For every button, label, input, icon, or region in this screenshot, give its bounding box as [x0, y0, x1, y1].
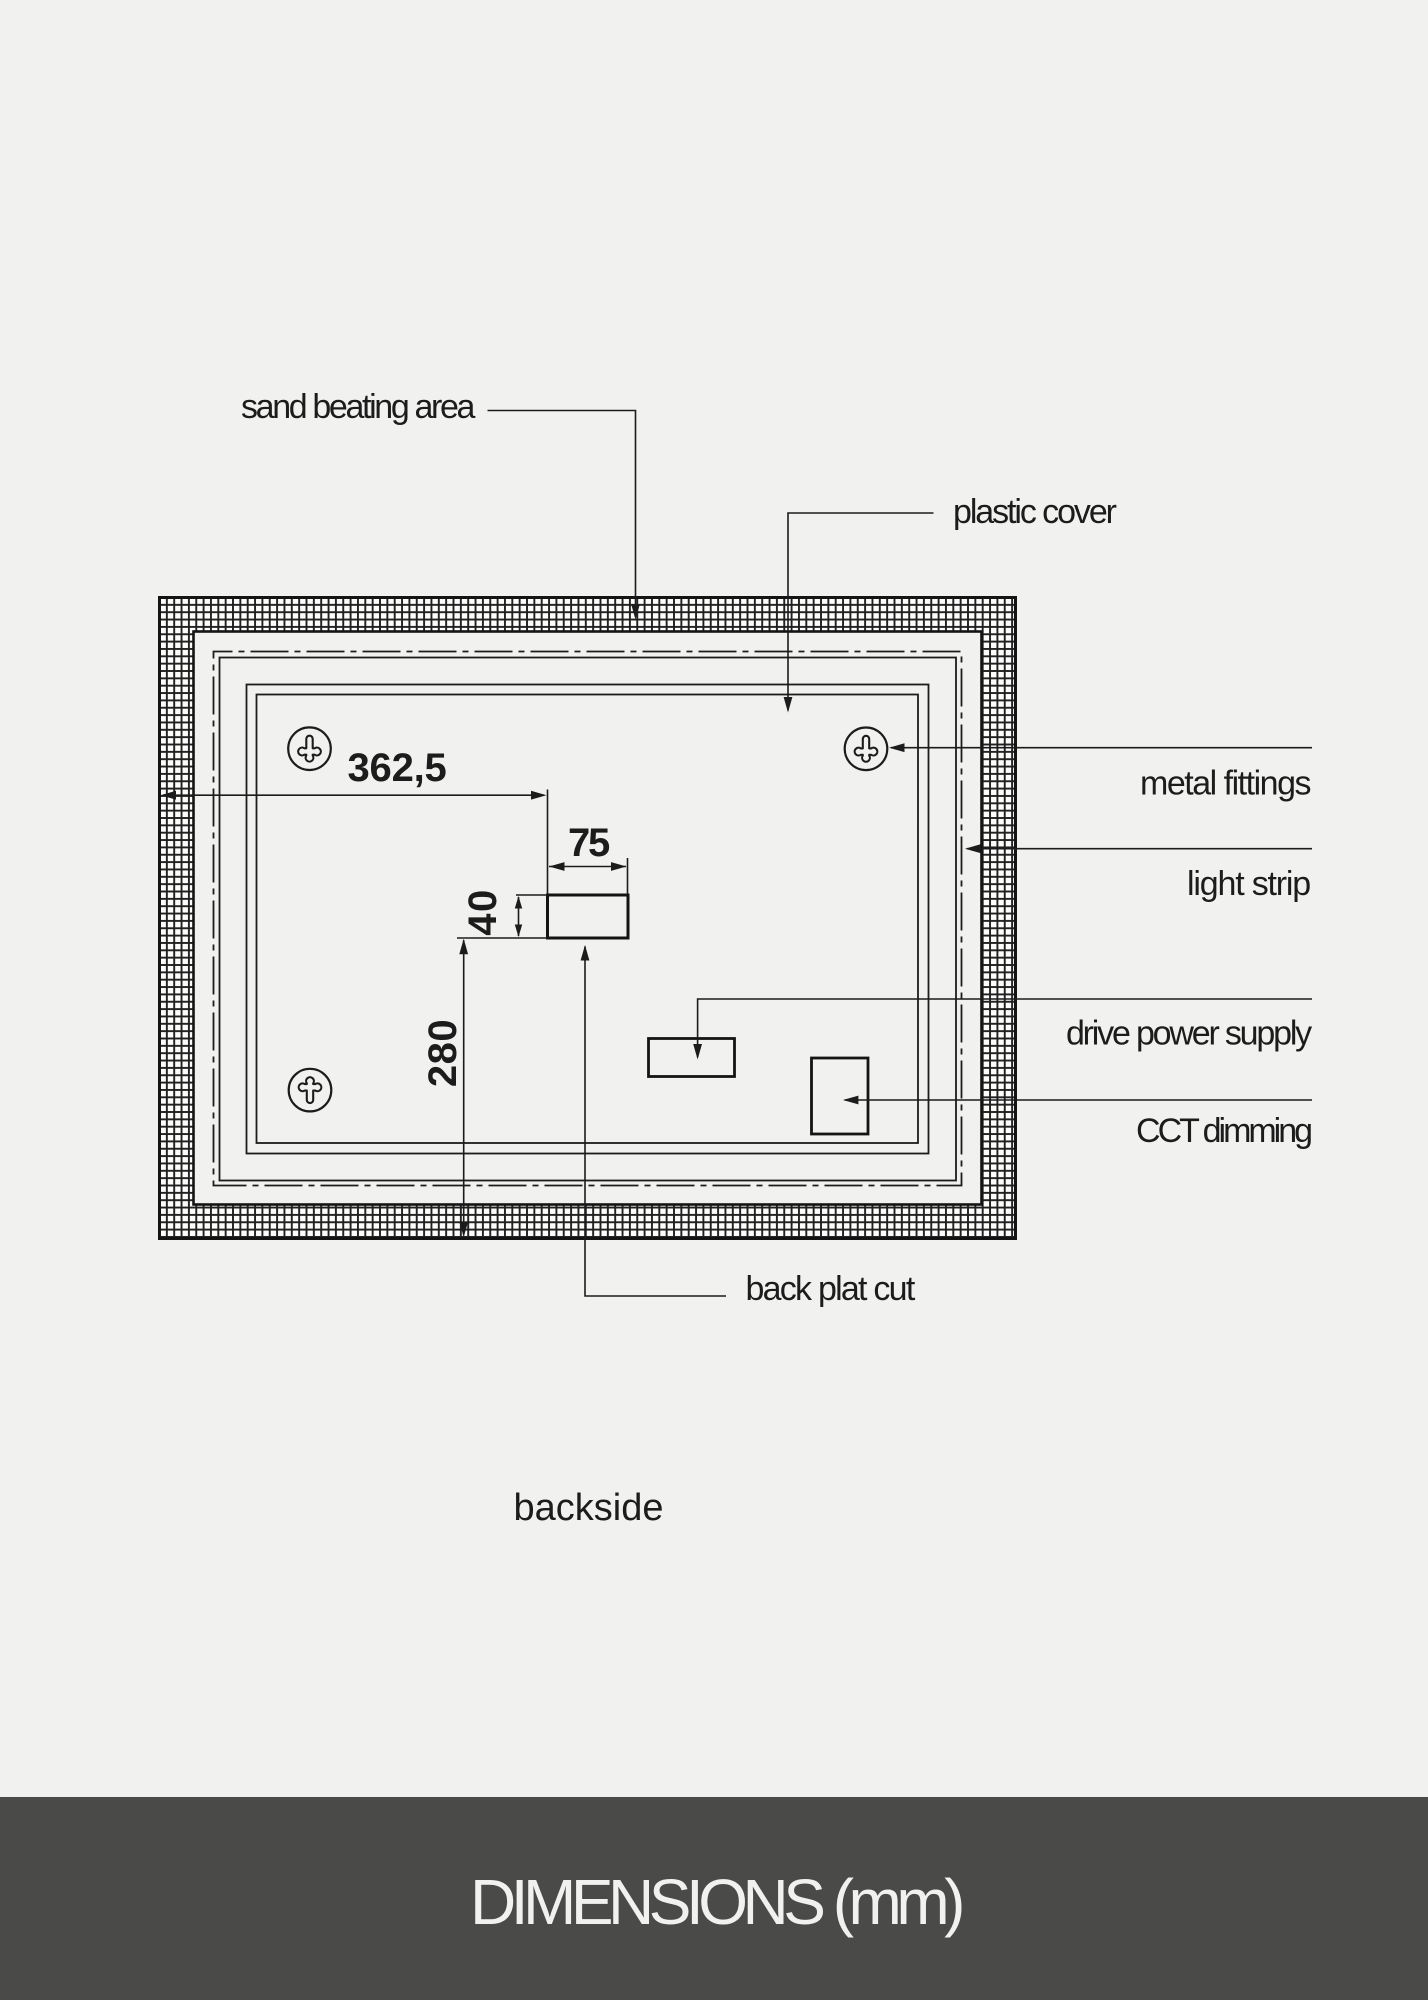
svg-text:backside: backside: [513, 1487, 663, 1529]
svg-text:75: 75: [568, 821, 610, 865]
svg-text:CCT dimming: CCT dimming: [1136, 1112, 1311, 1150]
svg-text:plastic cover: plastic cover: [953, 493, 1117, 531]
svg-text:sand beating area: sand beating area: [241, 388, 476, 426]
svg-text:drive power supply: drive power supply: [1066, 1015, 1312, 1053]
svg-text:40: 40: [461, 888, 505, 936]
svg-text:light strip: light strip: [1187, 865, 1310, 903]
svg-text:DIMENSIONS (mm): DIMENSIONS (mm): [470, 1866, 962, 1938]
svg-text:280: 280: [421, 1019, 465, 1087]
svg-text:metal fittings: metal fittings: [1140, 765, 1310, 803]
svg-text:362,5: 362,5: [347, 746, 446, 790]
svg-text:back plat cut: back plat cut: [745, 1270, 915, 1308]
